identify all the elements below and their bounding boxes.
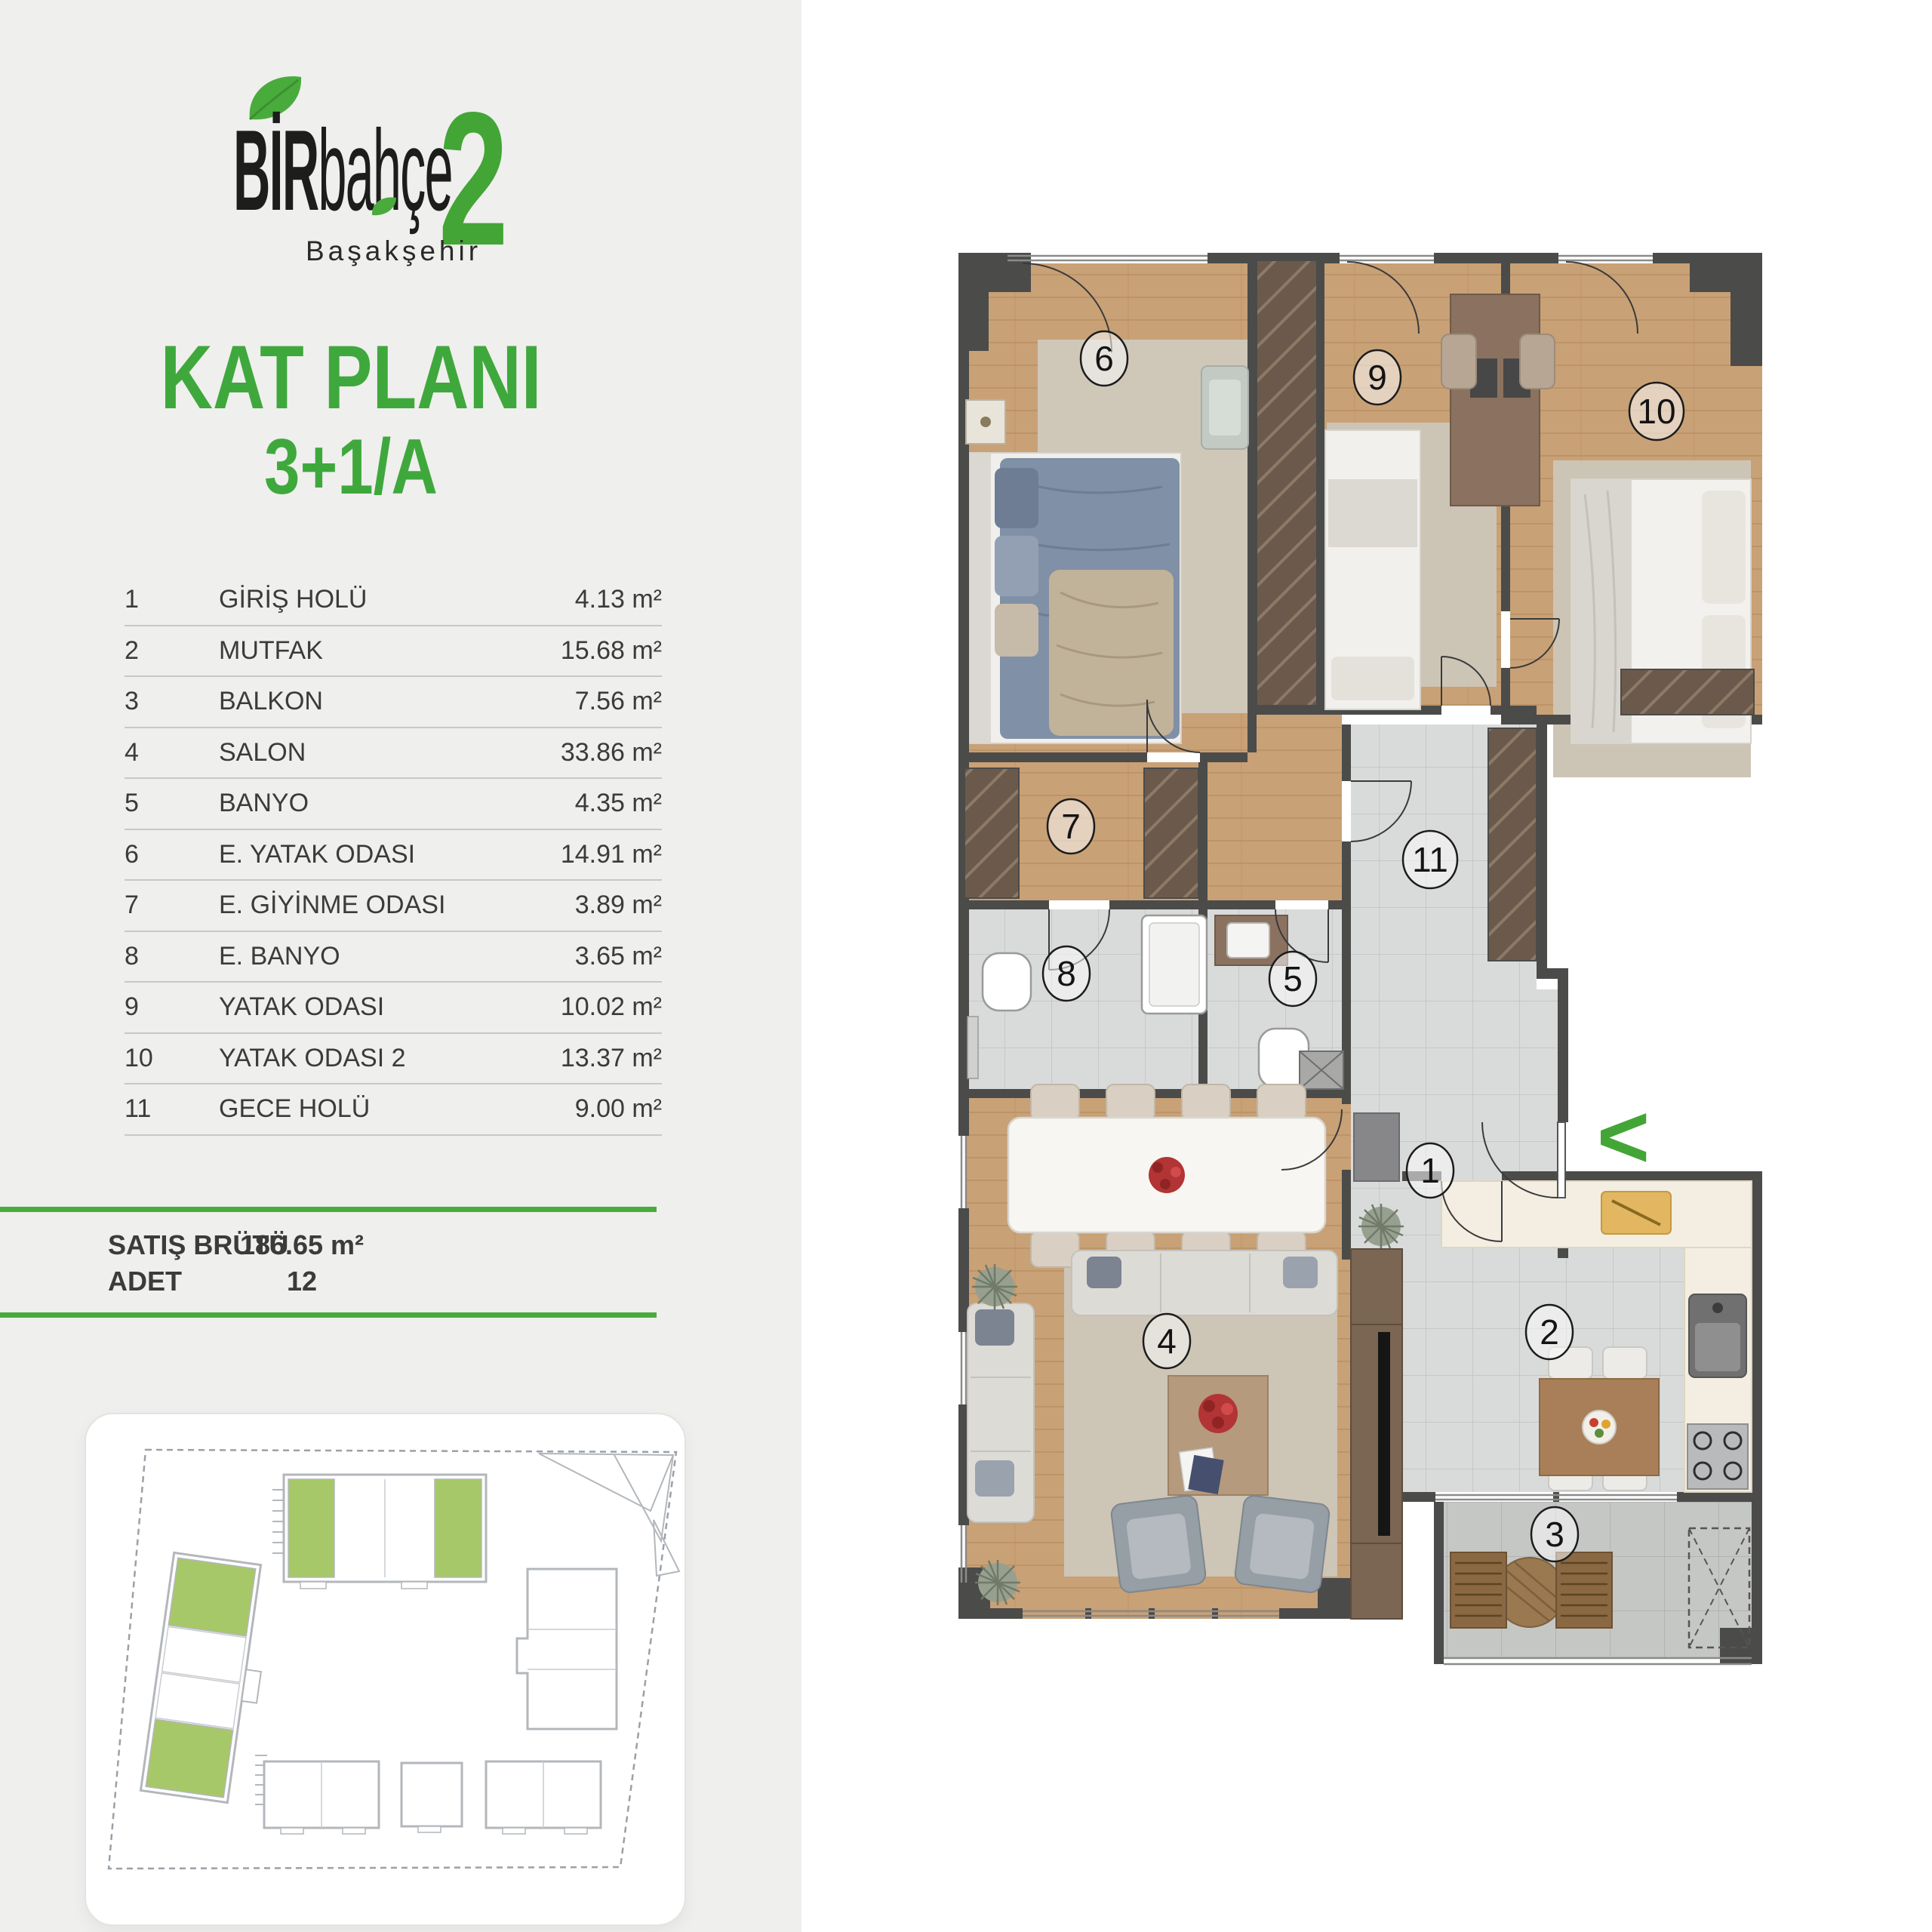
room-name: E. YATAK ODASI xyxy=(219,840,561,869)
wardrobe xyxy=(1257,260,1317,706)
room-name: MUTFAK xyxy=(219,636,561,666)
room-label-1: 1 xyxy=(1407,1143,1454,1198)
room-no: 3 xyxy=(125,687,219,716)
site-buildings-bottom xyxy=(264,1761,601,1828)
room-area: 3.89 m² xyxy=(575,891,662,920)
room-name: BALKON xyxy=(219,687,575,716)
room-label-4: 4 xyxy=(1143,1314,1190,1368)
plant xyxy=(1358,1204,1404,1249)
svg-text:5: 5 xyxy=(1283,959,1303,998)
svg-text:4: 4 xyxy=(1157,1321,1177,1361)
brochure-page: { "logo": { "brand_bold": "BİR", "brand_… xyxy=(0,0,1932,1932)
room-name: GİRİŞ HOLÜ xyxy=(219,585,575,614)
room-no: 8 xyxy=(125,942,219,971)
room-name: BANYO xyxy=(219,789,575,818)
room-name: YATAK ODASI 2 xyxy=(219,1044,561,1073)
table-row: 3BALKON7.56 m² xyxy=(125,677,662,728)
floor-plan: < 1 2 3 4 5 6 7 8 9 10 11 xyxy=(958,253,1770,1679)
tv xyxy=(1378,1332,1390,1536)
room-area: 33.86 m² xyxy=(561,738,662,768)
svg-text:6: 6 xyxy=(1094,339,1114,378)
room-no: 1 xyxy=(125,585,219,614)
table-row: 4SALON33.86 m² xyxy=(125,728,662,780)
site-building-right xyxy=(517,1569,617,1729)
entrance-arrow-icon: < xyxy=(1597,1086,1650,1187)
hall-wardrobe xyxy=(1488,728,1537,961)
room-area: 4.13 m² xyxy=(575,585,662,614)
table-row: 2MUTFAK15.68 m² xyxy=(125,626,662,678)
room-label-3: 3 xyxy=(1531,1507,1578,1561)
room-name: GECE HOLÜ xyxy=(219,1094,575,1124)
room-no: 9 xyxy=(125,992,219,1022)
svg-text:10: 10 xyxy=(1637,392,1675,431)
room-label-2: 2 xyxy=(1526,1305,1573,1359)
title-kat-plani: KAT PLANI xyxy=(70,332,632,423)
room-area: 9.00 m² xyxy=(575,1094,662,1124)
room-area: 13.37 m² xyxy=(561,1044,662,1073)
room-no: 10 xyxy=(125,1044,219,1073)
table-row: 9YATAK ODASI10.02 m² xyxy=(125,983,662,1034)
room-no: 4 xyxy=(125,738,219,768)
room-label-7: 7 xyxy=(1048,799,1094,854)
site-stair-marks xyxy=(255,1490,285,1804)
room-label-5: 5 xyxy=(1269,952,1316,1006)
room-no: 5 xyxy=(125,789,219,818)
svg-text:9: 9 xyxy=(1367,358,1387,397)
site-building-left xyxy=(140,1552,275,1804)
table-row: 5BANYO4.35 m² xyxy=(125,779,662,830)
brand-name: BİRbahçe xyxy=(233,113,452,228)
room-name: E. BANYO xyxy=(219,942,575,971)
logo-number: 2 xyxy=(438,104,509,255)
room-name: SALON xyxy=(219,738,561,768)
room-no: 11 xyxy=(125,1094,219,1124)
room-name: YATAK ODASI xyxy=(219,992,561,1022)
svg-text:7: 7 xyxy=(1061,807,1081,846)
room-name: E. GİYİNME ODASI xyxy=(219,891,575,920)
passage-floor xyxy=(1207,715,1342,900)
table-row: 1GİRİŞ HOLÜ4.13 m² xyxy=(125,575,662,626)
svg-text:2: 2 xyxy=(1540,1312,1559,1352)
table-row: 10YATAK ODASI 213.37 m² xyxy=(125,1034,662,1085)
project-logo: BİRbahçe 2 Başakşehir xyxy=(223,91,645,294)
summary-row-adet: ADET 12 xyxy=(0,1263,657,1300)
bedroom2-furniture xyxy=(1571,479,1754,743)
page-title: KAT PLANI 3+1/A xyxy=(0,332,702,509)
room-label-6: 6 xyxy=(1081,331,1128,386)
svg-text:1: 1 xyxy=(1420,1151,1440,1190)
room-area-table: 1GİRİŞ HOLÜ4.13 m² 2MUTFAK15.68 m² 3BALK… xyxy=(125,575,662,1136)
left-panel: BİRbahçe 2 Başakşehir KAT PLANI 3+1/A 1G… xyxy=(0,0,801,1932)
room-no: 7 xyxy=(125,891,219,920)
room-area: 15.68 m² xyxy=(561,636,662,666)
table-row: 6E. YATAK ODASI14.91 m² xyxy=(125,830,662,881)
site-building-top xyxy=(284,1475,486,1589)
room-no: 2 xyxy=(125,636,219,666)
site-plan-drawing xyxy=(86,1414,685,1921)
sales-summary: SATIŞ BRÜTÜ 186.65 m² ADET 12 xyxy=(0,1207,657,1318)
table-row: 11GECE HOLÜ9.00 m² xyxy=(125,1084,662,1136)
room-area: 3.65 m² xyxy=(575,942,662,971)
site-plan-card xyxy=(85,1413,686,1926)
room-area: 10.02 m² xyxy=(561,992,662,1022)
summary-value: 12 xyxy=(226,1266,377,1297)
room-area: 4.35 m² xyxy=(575,789,662,818)
room-label-8: 8 xyxy=(1043,946,1090,1001)
summary-value: 186.65 m² xyxy=(226,1229,377,1261)
logo-subtitle: Başakşehir xyxy=(306,235,481,267)
room-label-10: 10 xyxy=(1629,383,1684,440)
svg-text:3: 3 xyxy=(1545,1515,1564,1554)
title-plan-type: 3+1/A xyxy=(63,426,639,509)
room-area: 7.56 m² xyxy=(575,687,662,716)
summary-row-brut: SATIŞ BRÜTÜ 186.65 m² xyxy=(0,1227,657,1263)
table-row: 7E. GİYİNME ODASI3.89 m² xyxy=(125,881,662,932)
room-area: 14.91 m² xyxy=(561,840,662,869)
svg-text:8: 8 xyxy=(1057,954,1076,993)
room-no: 6 xyxy=(125,840,219,869)
shaft xyxy=(1300,1051,1343,1089)
svg-text:11: 11 xyxy=(1412,840,1448,879)
room-label-11: 11 xyxy=(1403,831,1457,888)
room-label-9: 9 xyxy=(1354,350,1401,405)
leaf-icon-small xyxy=(371,195,398,217)
table-row: 8E. BANYO3.65 m² xyxy=(125,932,662,983)
